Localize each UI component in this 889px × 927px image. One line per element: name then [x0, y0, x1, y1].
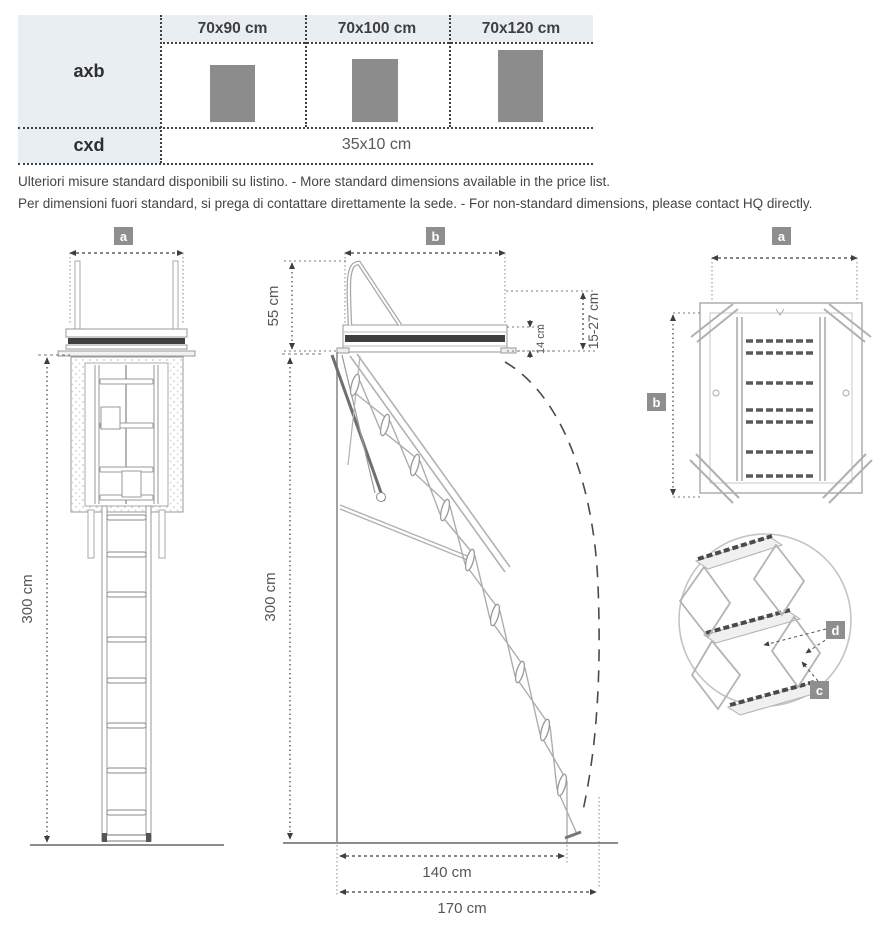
- hatch-size-swatch-70x100: [352, 59, 398, 122]
- front-height-dim: 300 cm: [19, 355, 70, 842]
- side-height-dim-text: 300 cm: [262, 572, 279, 621]
- hatch-door-front: [58, 329, 195, 356]
- side-view-drawing: b 55 cm 14 cm: [262, 225, 637, 925]
- hatch-frame-top: [690, 303, 872, 503]
- cxd-value: 35x10 cm: [160, 127, 593, 163]
- hatch-size-swatch-70x90: [210, 65, 255, 122]
- handrail-height-dim-text: 55 cm: [265, 286, 282, 327]
- handrail-height-dim: 55 cm: [265, 261, 346, 351]
- extended-ladder: [88, 506, 165, 842]
- dim-label-a: a: [778, 229, 786, 244]
- spec-sheet-page: axb cxd 70x90 cm 70x100 cm 70x120 cm 35x…: [0, 0, 889, 927]
- side-height-dim: 300 cm: [262, 354, 322, 839]
- note-line-2: Per dimensioni fuori standard, si prega …: [18, 193, 868, 215]
- dim-label-b: b: [432, 229, 440, 244]
- ceiling-range-dim: 15-27 cm: [506, 291, 601, 351]
- handrail-side: [349, 263, 400, 325]
- floor-outer-dim: 170 cm: [340, 892, 596, 917]
- dimension-table: axb cxd 70x90 cm 70x100 cm 70x120 cm 35x…: [18, 15, 593, 163]
- ceiling-range-dim-text: 15-27 cm: [586, 293, 601, 349]
- table-divider: [160, 42, 593, 44]
- front-height-dim-text: 300 cm: [19, 574, 36, 623]
- row-label-axb: axb: [18, 15, 160, 127]
- top-view-drawing: a: [640, 225, 885, 515]
- front-view-drawing: a: [18, 225, 260, 895]
- table-divider: [18, 163, 593, 165]
- floor-inner-dim: 140 cm: [337, 841, 567, 897]
- step-detail-drawing: d c: [660, 505, 889, 730]
- front-width-dim: a: [70, 227, 183, 325]
- ceiling-thickness-dim-text: 14 cm: [535, 324, 547, 354]
- dim-label-b: b: [653, 395, 661, 410]
- row-label-cxd: cxd: [18, 127, 160, 163]
- note-line-1: Ulteriori misure standard disponibili su…: [18, 171, 868, 193]
- handrail-posts: [75, 261, 178, 337]
- insulated-casing: [71, 357, 183, 512]
- hatch-size-swatch-70x120: [498, 50, 543, 122]
- hatch-door-side: [337, 263, 516, 353]
- dim-label-c: c: [816, 683, 823, 698]
- scissor-ladder: [349, 373, 581, 842]
- column-header-70x120: 70x120 cm: [449, 15, 593, 42]
- notes-block: Ulteriori misure standard disponibili su…: [18, 171, 868, 215]
- column-header-70x90: 70x90 cm: [160, 15, 305, 42]
- floor-outer-dim-text: 170 cm: [437, 900, 486, 917]
- dim-label-d: d: [832, 623, 840, 638]
- top-depth-dim: b: [647, 313, 700, 497]
- floor-inner-dim-text: 140 cm: [422, 864, 471, 881]
- column-header-70x100: 70x100 cm: [305, 15, 449, 42]
- dim-label-a: a: [120, 229, 128, 244]
